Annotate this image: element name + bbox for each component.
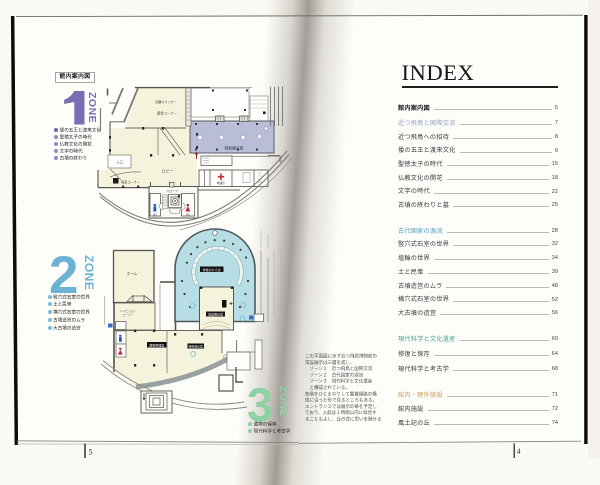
svg-text:コーナー: コーナー	[122, 313, 133, 317]
svg-text:救護室: 救護室	[217, 181, 225, 185]
svg-text:5: 5	[89, 448, 93, 457]
svg-text:ホール: ホール	[127, 271, 138, 276]
svg-text:WC: WC	[153, 214, 157, 217]
svg-text:図書コーナー: 図書コーナー	[157, 111, 178, 116]
svg-text:修羅のひろば: 修羅のひろば	[203, 267, 221, 272]
svg-text:特別展示室: 特別展示室	[188, 344, 203, 349]
svg-text:スロープ: スロープ	[166, 188, 178, 193]
svg-text:図書カウンター: 図書カウンター	[155, 99, 176, 104]
svg-text:喫茶コーナー: 喫茶コーナー	[121, 180, 140, 185]
svg-text:常設展示室: 常設展示室	[208, 312, 223, 317]
svg-text:遺物整理室: 遺物整理室	[149, 342, 164, 347]
svg-text:入口: 入口	[116, 161, 122, 165]
svg-text:特別展示室: 特別展示室	[225, 146, 244, 151]
svg-text:4: 4	[517, 447, 521, 456]
svg-text:WC: WC	[186, 214, 190, 217]
svg-text:ロビー: ロビー	[162, 168, 174, 174]
